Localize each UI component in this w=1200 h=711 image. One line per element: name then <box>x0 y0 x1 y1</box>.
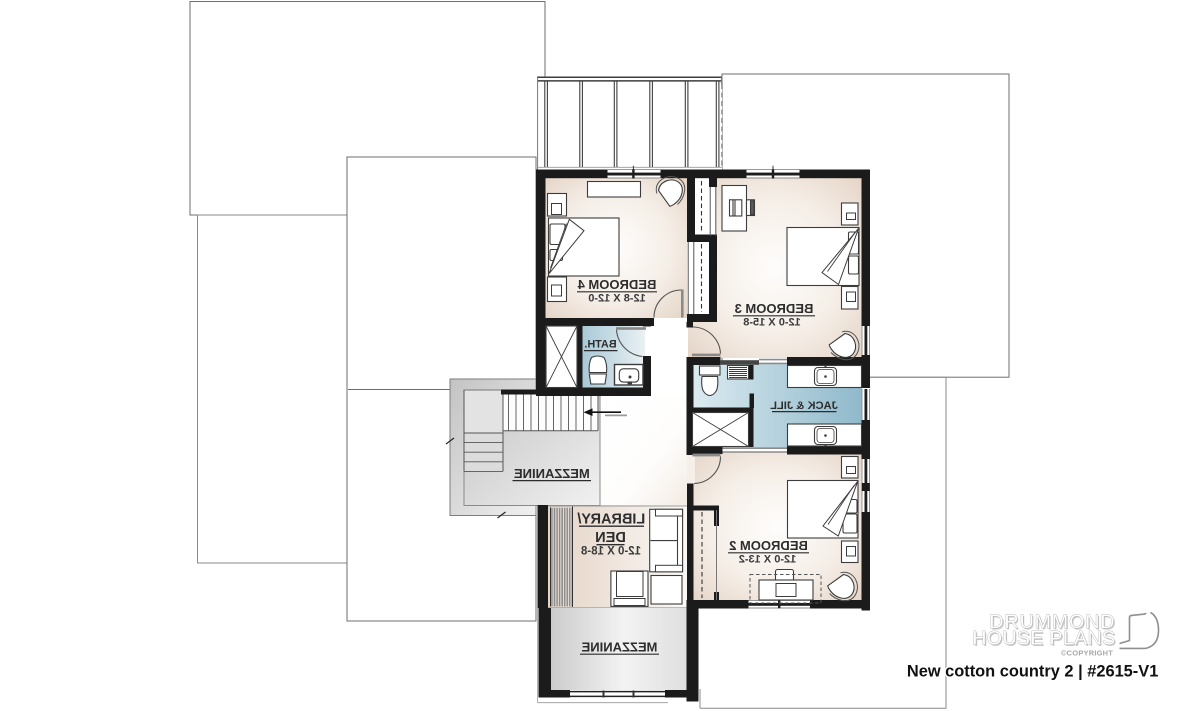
svg-text:12-0 X 18-8: 12-0 X 18-8 <box>580 546 641 558</box>
svg-text:©COPYRIGHT: ©COPYRIGHT <box>1061 648 1113 657</box>
svg-text:BEDROOM 2: BEDROOM 2 <box>729 538 808 553</box>
svg-text:BEDROOM 3: BEDROOM 3 <box>735 301 814 316</box>
svg-text:BEDROOM 4: BEDROOM 4 <box>577 277 657 292</box>
svg-text:MEZZANINE: MEZZANINE <box>581 640 657 655</box>
svg-text:MEZZANINE: MEZZANINE <box>514 466 590 481</box>
svg-text:12-0 X 13-2: 12-0 X 13-2 <box>739 554 796 566</box>
svg-text:DEN: DEN <box>595 530 626 546</box>
svg-text:JACK & JILL: JACK & JILL <box>770 400 838 412</box>
svg-text:12-0 X 15-8: 12-0 X 15-8 <box>743 317 800 329</box>
svg-text:BATH.: BATH. <box>584 339 616 351</box>
svg-text:12-8 X 12-0: 12-8 X 12-0 <box>588 293 645 305</box>
svg-text:New cotton country 2 | #2615-V: New cotton country 2 | #2615-V1 <box>907 663 1158 681</box>
svg-text:LIBRARY/: LIBRARY/ <box>577 512 645 528</box>
svg-text:HOUSE PLANS: HOUSE PLANS <box>972 628 1115 650</box>
